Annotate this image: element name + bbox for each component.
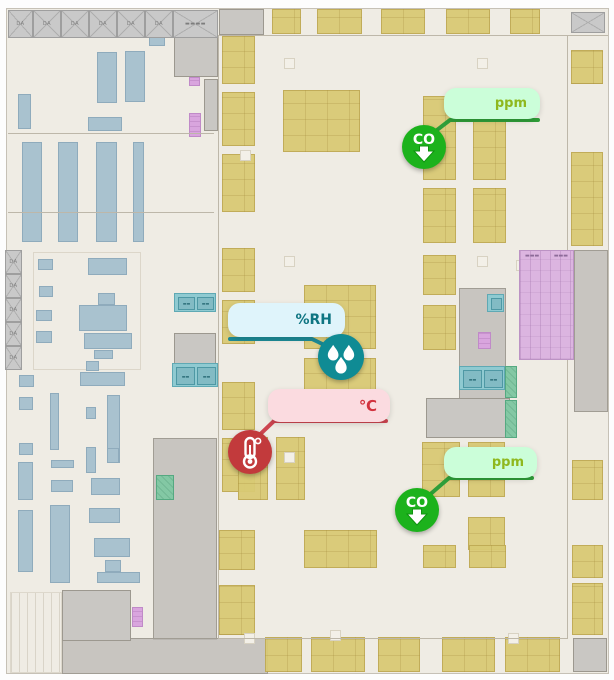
room-teal-unit (487, 294, 504, 312)
wall-line (218, 638, 568, 639)
room-gray (204, 79, 218, 131)
rack-block (222, 36, 255, 84)
rack-block (423, 188, 456, 243)
truss-bay-label: DA (9, 283, 17, 289)
roof-truss-bay: DA (145, 10, 173, 38)
equipment-block (97, 52, 117, 103)
humidity-sensor-tooltip[interactable]: %RH (228, 303, 345, 337)
room-purple (132, 607, 143, 627)
room-green (505, 400, 517, 438)
rack-block (473, 188, 506, 243)
equipment-block (19, 375, 34, 387)
rack-block (276, 437, 305, 500)
rack-block (378, 637, 420, 672)
truss-bay-label: DA (9, 331, 17, 337)
room-gray (573, 638, 607, 672)
rack-block (219, 585, 255, 635)
equipment-block (51, 460, 74, 468)
equipment-block (86, 361, 99, 371)
room-gray (219, 9, 264, 35)
equipment-block (97, 572, 140, 583)
equipment-block (19, 443, 33, 455)
zone-gray (574, 250, 608, 412)
co-sensor-2-unit-label: ppm (492, 455, 524, 470)
zone-gray (153, 438, 217, 640)
equipment-block (133, 142, 144, 242)
humidity-sensor-marker[interactable] (318, 334, 364, 380)
equipment-block (51, 480, 73, 492)
humidity-sensor-unit-label: %RH (295, 312, 332, 328)
equipment-block (39, 286, 53, 297)
equipment-block (91, 478, 120, 495)
floor-pad (284, 452, 295, 463)
rack-block (222, 382, 255, 430)
rack-block (311, 637, 365, 672)
water-drops-icon (318, 334, 364, 380)
rack-block (469, 545, 506, 568)
equipment-block (86, 407, 96, 419)
equipment-block (50, 393, 59, 450)
rack-block (442, 637, 495, 672)
zone-gray (62, 638, 268, 674)
wall-line (8, 133, 214, 134)
dock-hatch-area (10, 592, 62, 673)
equipment-block (89, 508, 120, 523)
rack-block (222, 248, 255, 292)
rack-block (265, 637, 302, 672)
thermometer-icon (228, 430, 272, 474)
temperature-sensor-marker[interactable] (228, 430, 272, 474)
rack-block (423, 545, 456, 568)
roof-truss-bay: DA (8, 10, 33, 38)
equipment-unit: ▬▬ (197, 297, 214, 310)
roof-truss-bay: DA (33, 10, 61, 38)
floor-pad (240, 150, 251, 161)
equipment-block (79, 305, 127, 331)
ramp-purple: ▬▬▬▬▬▬ (519, 250, 574, 360)
equipment-unit: ▬▬ (178, 297, 195, 310)
equipment-block (80, 372, 125, 386)
equipment-block (18, 94, 31, 129)
braced-bay (571, 12, 605, 33)
floor-pad (477, 256, 488, 267)
room-teal: ▬▬▬▬ (459, 366, 505, 390)
equipment-unit: ▬▬ (176, 367, 195, 385)
room-green (505, 366, 517, 398)
equipment-block (88, 258, 127, 275)
truss-bay-label: DA (43, 21, 51, 27)
co-down-arrow-icon: CO (402, 125, 446, 169)
equipment-block (107, 448, 119, 463)
equipment-block (88, 117, 122, 131)
rack-block (219, 530, 255, 570)
rack-block (423, 255, 456, 295)
equipment-block (19, 397, 33, 410)
room-purple (478, 332, 491, 349)
equipment-block (84, 333, 132, 349)
truss-bay-label: DA (9, 307, 17, 313)
roof-truss-bay: DA (117, 10, 145, 38)
room-purple (189, 77, 200, 86)
roof-truss-bay: DA (89, 10, 117, 38)
truss-bay-label: DA (127, 21, 135, 27)
roof-truss-bay: DA (61, 10, 89, 38)
equipment-block (18, 462, 33, 500)
rack-block (272, 9, 301, 34)
floorplan-viewer: ▬▬▬▬▬▬▬▬▬▬▬▬DADADADADADA▬▬▬▬DADADADADA▬▬… (0, 0, 614, 680)
floor-pad (284, 256, 295, 267)
wall-line (8, 212, 214, 213)
equipment-unit: ▬▬ (197, 367, 216, 385)
rack-block (304, 530, 377, 568)
equipment-block (50, 505, 70, 583)
equipment-block (58, 142, 78, 242)
truss-bay-label: DA (9, 355, 17, 361)
rack-block (572, 583, 603, 635)
room-green (156, 475, 174, 500)
floor-pad (284, 58, 295, 69)
rack-block (571, 152, 603, 246)
roof-truss-bay: DA (5, 322, 22, 346)
equipment-unit (491, 298, 502, 310)
equipment-unit: ▬▬ (463, 370, 482, 388)
rack-block (446, 9, 490, 34)
truss-bay-label: DA (99, 21, 107, 27)
rack-block (571, 50, 603, 84)
equipment-block (36, 331, 52, 343)
room-gray (426, 398, 510, 438)
co-sensor-1-marker[interactable]: CO (402, 125, 446, 169)
floor-pad (330, 630, 341, 641)
equipment-block (86, 447, 96, 473)
truss-bay-label: DA (71, 21, 79, 27)
co-sensor-2-tooltip[interactable]: ppm (444, 447, 537, 478)
rack-block (423, 305, 456, 350)
wall-line (218, 35, 219, 638)
equipment-block (125, 51, 145, 102)
floor-pad (477, 58, 488, 69)
equipment-block (96, 142, 117, 242)
equipment-block (149, 37, 165, 46)
equipment-block (105, 560, 121, 572)
roof-truss-bay: DA (5, 346, 22, 370)
co-sensor-1-tooltip[interactable]: ppm (444, 88, 540, 119)
rack-block (283, 90, 360, 152)
room-teal: ▬▬▬▬ (172, 363, 218, 387)
equipment-block (18, 510, 33, 572)
equipment-unit: ▬▬ (484, 370, 503, 388)
co-down-arrow-icon: CO (395, 488, 439, 532)
equipment-block (94, 538, 130, 557)
ramp-label: ▬▬▬ (525, 253, 539, 259)
rack-block (317, 9, 362, 34)
temperature-sensor-unit-label: ℃ (359, 397, 377, 415)
rack-block (572, 545, 603, 578)
co-sensor-2-marker[interactable]: CO (395, 488, 439, 532)
equipment-block (38, 259, 53, 270)
equipment-block (36, 310, 52, 321)
equipment-block (98, 293, 115, 305)
roof-truss-bay: DA (5, 250, 22, 274)
equipment-block (22, 142, 42, 242)
rack-block (572, 460, 603, 500)
rack-block (222, 92, 255, 146)
temperature-sensor-tooltip[interactable]: ℃ (268, 389, 390, 422)
co-sensor-1-unit-label: ppm (495, 96, 527, 111)
wall-line (218, 35, 608, 36)
room-gray (62, 590, 131, 641)
room-teal: ▬▬▬▬ (174, 293, 216, 312)
rack-block (222, 154, 255, 212)
ramp-label: ▬▬▬ (554, 253, 568, 259)
truss-bay-label: DA (16, 21, 24, 27)
roof-truss-bay: DA (5, 298, 22, 322)
truss-bay-label: DA (9, 259, 17, 265)
roof-truss-bay: ▬▬▬▬ (173, 10, 218, 38)
truss-bay-label: ▬▬▬▬ (185, 21, 206, 27)
room-gray (174, 333, 216, 366)
roof-truss-bay: DA (5, 274, 22, 298)
truss-bay-label: DA (155, 21, 163, 27)
rack-block (381, 9, 425, 34)
equipment-block (94, 350, 113, 359)
rack-block (510, 9, 540, 34)
